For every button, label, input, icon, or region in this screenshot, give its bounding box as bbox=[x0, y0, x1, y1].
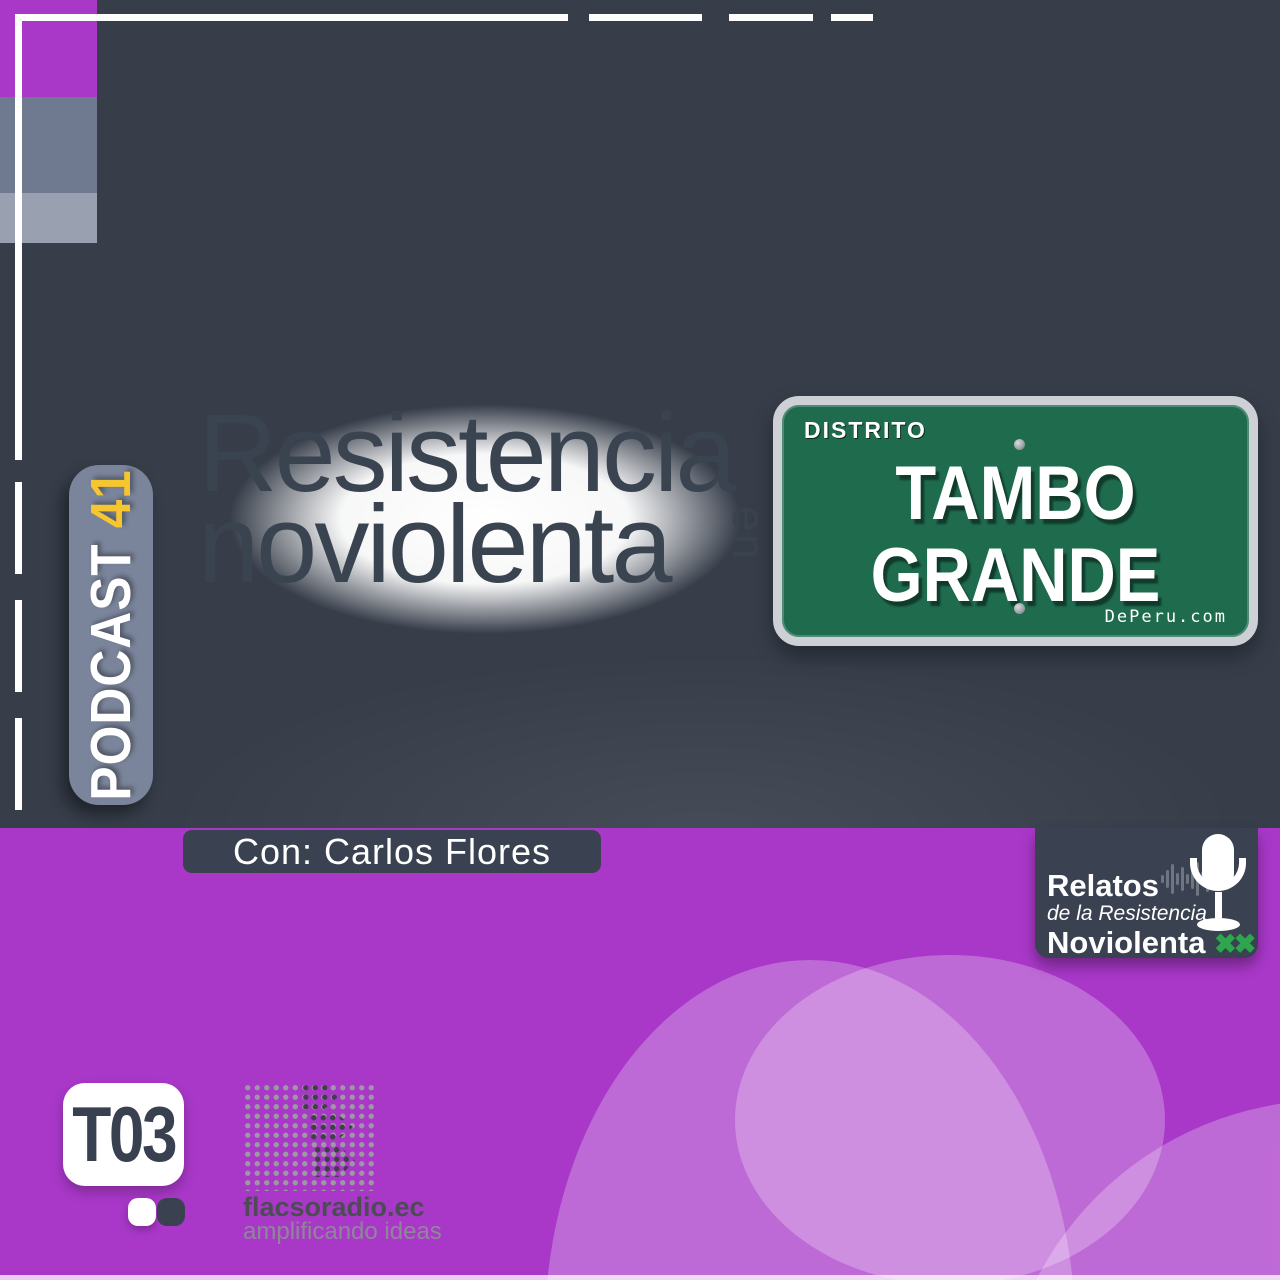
sign-category-label: DISTRITO bbox=[804, 417, 927, 444]
screw-bottom-icon bbox=[1014, 603, 1025, 614]
series-emphasis: Noviolenta bbox=[1047, 925, 1205, 960]
toggle-dots bbox=[128, 1198, 185, 1226]
series-title: Relatos bbox=[1047, 870, 1253, 901]
series-text: Relatos de la Resistencia Noviolenta ✖✖ bbox=[1047, 870, 1253, 958]
host-label: Con: Carlos Flores bbox=[233, 831, 551, 873]
series-emphasis-row: Noviolenta ✖✖ bbox=[1047, 927, 1253, 958]
podcast-badge-label: PODCAST bbox=[79, 543, 143, 800]
screw-top-icon bbox=[1014, 439, 1025, 450]
flacso-dots-logo bbox=[243, 1083, 375, 1191]
series-x-marks-icon: ✖✖ bbox=[1214, 929, 1253, 959]
station-tagline: amplificando ideas bbox=[243, 1218, 442, 1246]
poster-canvas: PODCAST 41 Resistencia noviolenta en DIS… bbox=[0, 0, 1280, 1280]
podcast-badge-number: 41 bbox=[79, 469, 143, 528]
sign-credit: DePeru.com bbox=[1105, 607, 1227, 627]
page-title: Resistencia noviolenta bbox=[198, 408, 734, 590]
sign-name: TAMBO GRANDE bbox=[810, 453, 1221, 617]
toggle-dot-dark bbox=[157, 1198, 185, 1226]
street-sign: DISTRITO TAMBO GRANDE DePeru.com bbox=[773, 396, 1258, 646]
title-connector: en bbox=[722, 506, 776, 561]
host-badge: Con: Carlos Flores bbox=[183, 830, 601, 873]
series-subtitle: de la Resistencia bbox=[1047, 903, 1253, 924]
frame-line-left-solid bbox=[15, 14, 22, 460]
frame-line-top bbox=[18, 14, 873, 21]
season-badge: T03 bbox=[63, 1083, 184, 1186]
series-badge: Relatos de la Resistencia Noviolenta ✖✖ bbox=[1035, 828, 1258, 958]
bottom-edge-strip bbox=[0, 1275, 1280, 1280]
sign-name-line1: TAMBO bbox=[810, 453, 1221, 535]
toggle-dot-white bbox=[128, 1198, 156, 1226]
title-line2: noviolenta bbox=[198, 499, 734, 590]
season-label: T03 bbox=[72, 1089, 175, 1180]
podcast-badge-text: PODCAST 41 bbox=[78, 469, 144, 800]
